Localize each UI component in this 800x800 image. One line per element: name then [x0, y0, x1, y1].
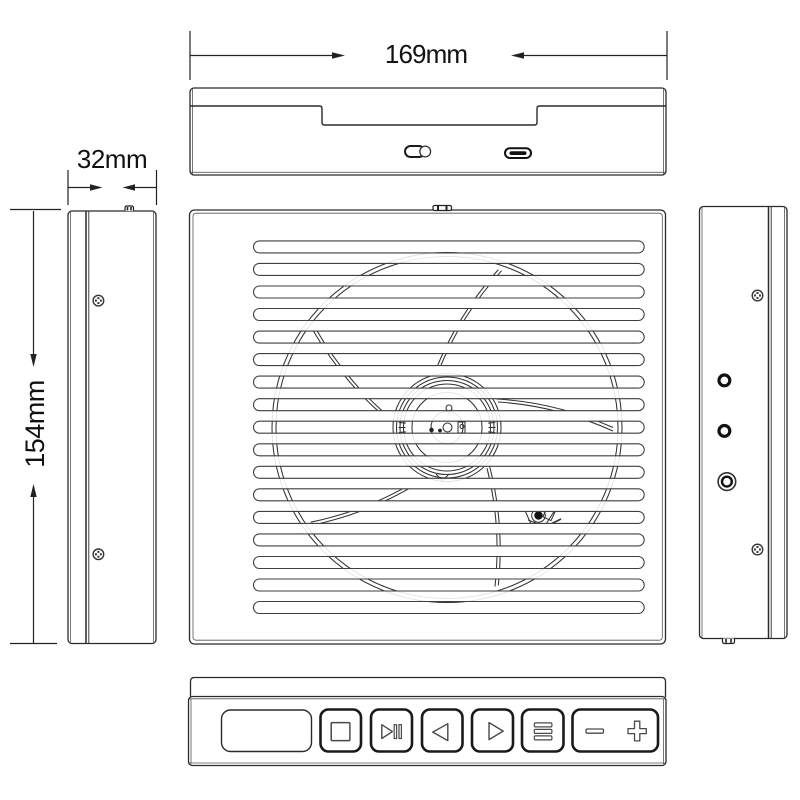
svg-text:32mm: 32mm [77, 144, 147, 174]
svg-text:169mm: 169mm [385, 39, 467, 69]
svg-text:154mm: 154mm [20, 380, 50, 468]
